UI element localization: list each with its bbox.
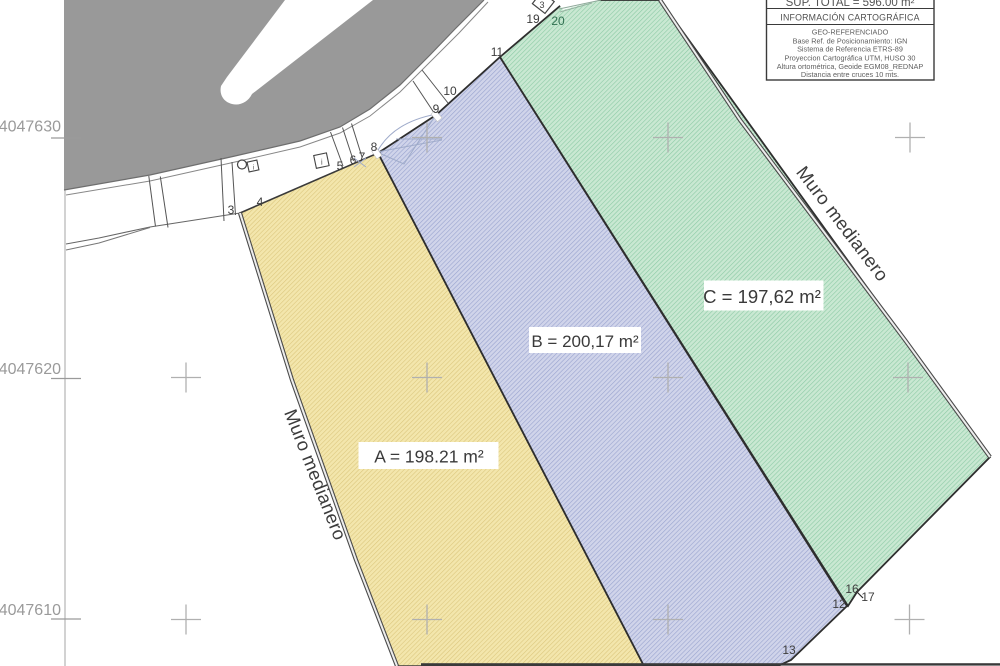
svg-text:17: 17: [861, 590, 875, 604]
svg-text:12: 12: [832, 597, 846, 611]
svg-text:INFORMACIÓN CARTOGRÁFICA: INFORMACIÓN CARTOGRÁFICA: [780, 13, 919, 23]
svg-text:4047610: 4047610: [0, 602, 61, 619]
svg-text:9: 9: [433, 102, 440, 116]
svg-text:B = 200,17 m²: B = 200,17 m²: [531, 332, 639, 351]
svg-text:Sistema de Referencia ETRS-89: Sistema de Referencia ETRS-89: [797, 45, 903, 54]
svg-text:4: 4: [257, 195, 264, 209]
svg-text:5: 5: [337, 159, 344, 173]
svg-text:Distancia entre cruces 10 mts.: Distancia entre cruces 10 mts.: [801, 70, 899, 79]
svg-text:SUP. TOTAL = 596.00 m²: SUP. TOTAL = 596.00 m²: [786, 0, 915, 9]
svg-text:6: 6: [350, 153, 357, 167]
svg-text:13: 13: [782, 643, 796, 657]
svg-text:3: 3: [228, 203, 235, 217]
svg-text:20: 20: [551, 14, 565, 28]
svg-text:10: 10: [443, 84, 457, 98]
svg-text:4047630: 4047630: [0, 119, 61, 136]
svg-text:C = 197,62 m²: C = 197,62 m²: [703, 286, 821, 307]
svg-text:4047620: 4047620: [0, 361, 61, 378]
svg-text:11: 11: [491, 45, 504, 59]
svg-text:8: 8: [371, 140, 378, 154]
svg-text:16: 16: [845, 582, 859, 596]
svg-text:3: 3: [539, 0, 544, 10]
svg-text:19: 19: [526, 12, 540, 26]
svg-text:7: 7: [359, 150, 366, 164]
svg-text:A = 198.21 m²: A = 198.21 m²: [374, 447, 484, 467]
svg-text:GEO-REFERENCIADO: GEO-REFERENCIADO: [812, 28, 889, 37]
